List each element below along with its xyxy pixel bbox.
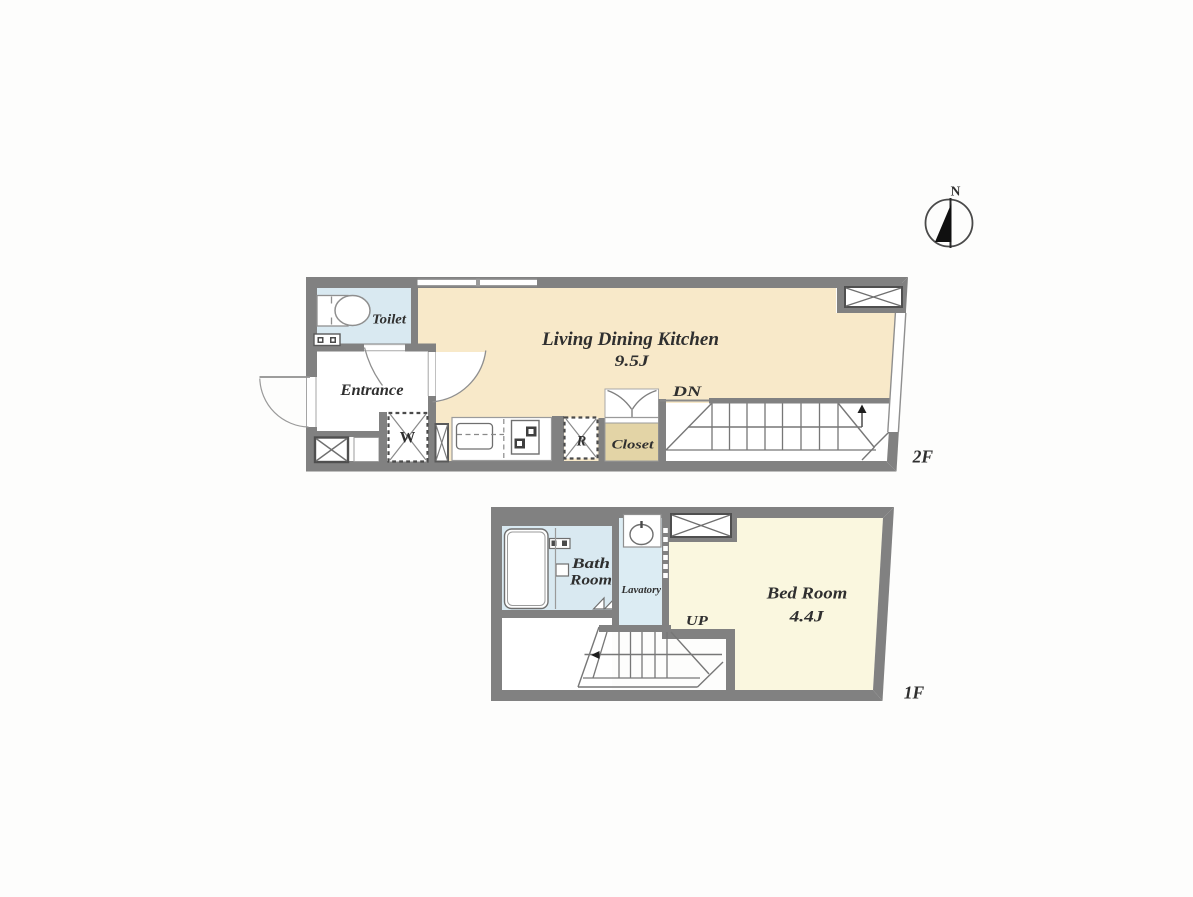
svg-text:Toilet: Toilet [372,313,407,328]
svg-text:W: W [400,430,416,447]
svg-text:N: N [951,184,961,199]
svg-text:Room: Room [569,573,612,589]
svg-text:Bed Room: Bed Room [766,584,848,603]
svg-text:Closet: Closet [612,437,654,452]
svg-text:4.4J: 4.4J [788,609,825,626]
svg-text:Entrance: Entrance [339,382,403,399]
svg-text:R: R [576,434,587,450]
svg-text:9.5J: 9.5J [615,353,651,370]
svg-text:UP: UP [686,613,709,628]
svg-text:2F: 2F [912,447,934,467]
svg-text:Bath: Bath [571,556,610,572]
svg-text:Lavatory: Lavatory [620,585,661,596]
svg-text:1F: 1F [904,683,925,703]
svg-text:Living Dining Kitchen: Living Dining Kitchen [541,329,719,350]
svg-text:DN: DN [671,384,702,400]
